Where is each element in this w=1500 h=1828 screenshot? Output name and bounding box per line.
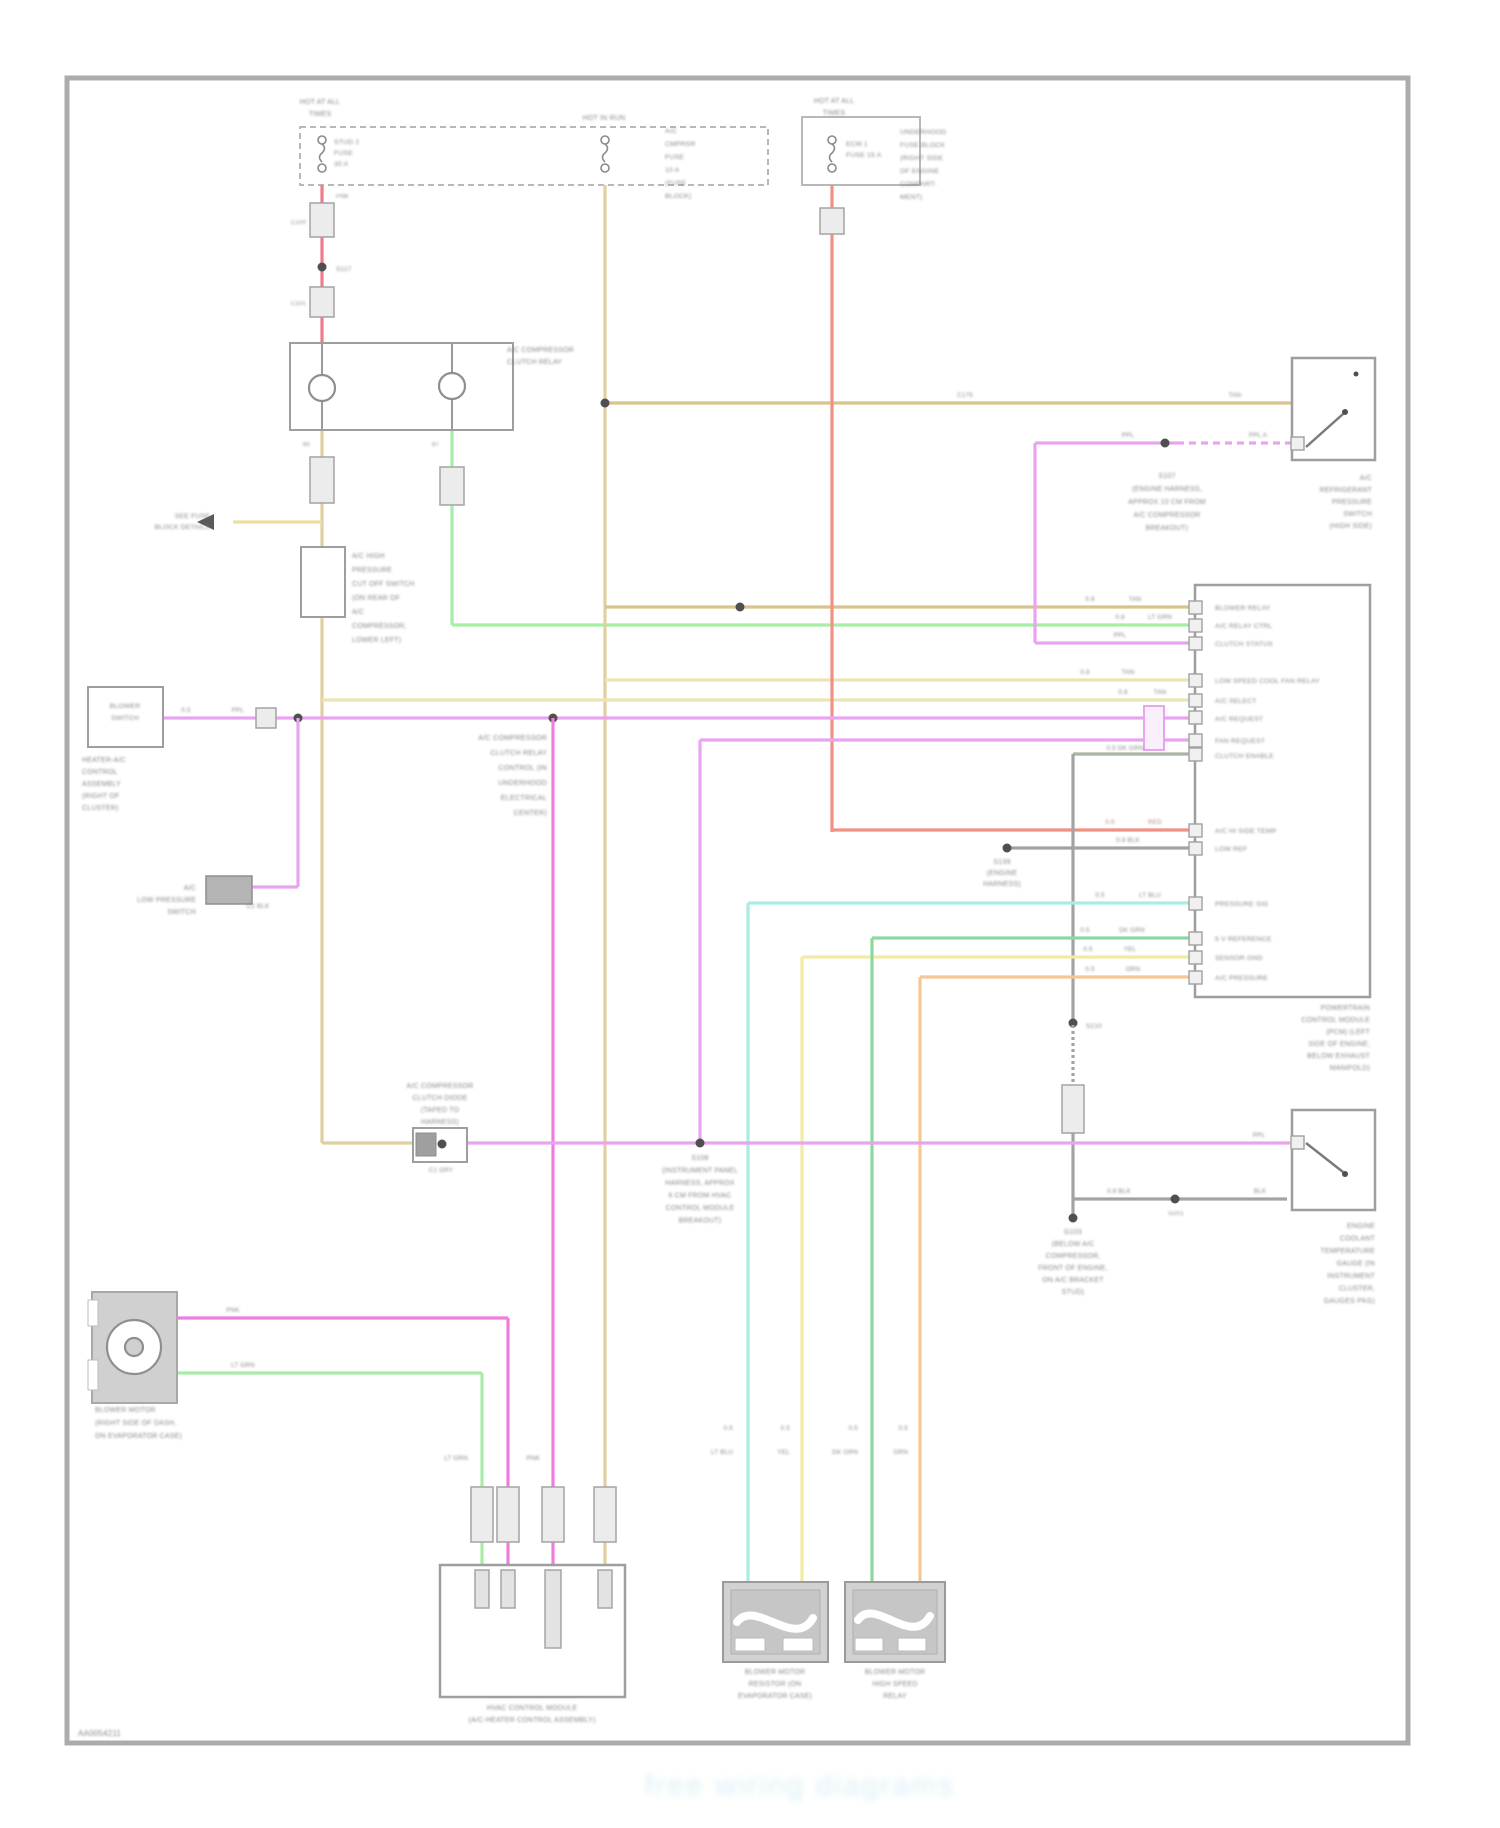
- code-blu-903a: 0.5: [1095, 892, 1105, 899]
- hot-label-3: HOT AT ALL: [814, 98, 855, 105]
- watermark: free wiring diagrams: [645, 1769, 955, 1802]
- fuse-2-label: FUSE: [665, 154, 684, 161]
- hs-relay-label: RELAY: [883, 1693, 907, 1700]
- pcm-pin-row: A/C SELECT: [1215, 698, 1257, 705]
- resistor-label: BLOWER MOTOR: [745, 1669, 806, 1676]
- lp-switch-label: A/C: [184, 885, 196, 892]
- splice-s107-label: (ENGINE HARNESS,: [1132, 486, 1202, 493]
- ground-g103-label: G103: [1064, 1229, 1082, 1236]
- splice-s108-label: HARNESS, APPROX: [665, 1180, 735, 1187]
- splice-s210-label: S210: [1086, 1023, 1102, 1030]
- lp-switch-label: SWITCH: [167, 909, 196, 916]
- pcm-pin-row: CLUTCH ENABLE: [1215, 753, 1274, 760]
- temp-gauge-label: COOLANT: [1340, 1236, 1376, 1243]
- code-pnk-1318: PNK: [226, 1307, 240, 1314]
- clutch-diode-label: CLUTCH DIODE: [413, 1095, 468, 1102]
- code-tan-700b: TAN: [1154, 689, 1167, 696]
- relay-label: A/C COMPRESSOR: [507, 347, 574, 354]
- pcm-label: CONTROL MODULE: [1301, 1017, 1370, 1024]
- pcm-pin-row: FAN REQUEST: [1215, 738, 1265, 745]
- hs-relay-slot-1: [855, 1638, 883, 1651]
- ground-g103-label: ON A/C BRACKET: [1042, 1277, 1104, 1284]
- clutch-control-label: CLUTCH RELAY: [490, 748, 547, 757]
- code-blu-903b: LT BLU: [1139, 892, 1161, 899]
- resistor-slot-2: [783, 1638, 813, 1651]
- fuse-2-label: (FUSE: [665, 180, 687, 187]
- connector-pin: [1189, 694, 1202, 707]
- hp-switch-label: REFRIGERANT: [1320, 487, 1373, 494]
- fuse-3-label: ECM 1: [846, 141, 868, 148]
- splice-s108-label: S108: [691, 1155, 708, 1162]
- pcm-pin-row: SENSOR GND: [1215, 955, 1263, 962]
- fuse-1-label: FUSE: [334, 150, 353, 157]
- pcm-pin-row: LOW REF: [1215, 846, 1247, 853]
- splice-s108-label: (INSTRUMENT PANEL: [662, 1168, 738, 1175]
- temp-gauge-box: [1292, 1110, 1375, 1210]
- code-grn3-v: LT GRN: [444, 1455, 468, 1462]
- code-grn-938a: 0.5: [1080, 927, 1090, 934]
- code-grn-938b: DK GRN: [1119, 927, 1145, 934]
- connector-pin: [1189, 674, 1202, 687]
- connector-on-red: [820, 208, 844, 234]
- blower-switch-label: CLUSTER): [82, 805, 119, 812]
- hp-cutoff-switch-label: LOWER LEFT): [352, 637, 401, 644]
- temp-gauge-label: GAUGES PKG): [1324, 1298, 1375, 1305]
- code-orn-977a: 0.5: [1085, 966, 1095, 973]
- hot-label-3: TIMES: [823, 110, 846, 117]
- clutch-diode-body: [416, 1133, 436, 1156]
- ppl-pair-connector: [1144, 706, 1164, 750]
- pcm-pin-row: A/C HI SIDE TEMP: [1215, 828, 1277, 835]
- blower-pin-notch-1: [88, 1300, 98, 1326]
- fuse-2-icon: [601, 164, 609, 172]
- splice-s139-label: HARNESS): [983, 881, 1021, 888]
- hp-switch-label: A/C: [1360, 475, 1372, 482]
- blower-motor-label: (RIGHT SIDE OF DASH,: [95, 1420, 176, 1427]
- code-yel-v: 0.5: [781, 1425, 791, 1432]
- fuse-block-b-label: COMPART-: [900, 181, 937, 188]
- tan-tee-dot-2: [736, 603, 745, 612]
- gry-gauge-dot: [1171, 1195, 1180, 1204]
- tan-tee-dot-1: [601, 399, 610, 408]
- connector-pin: [1189, 897, 1202, 910]
- hs-relay-slot-2: [898, 1638, 926, 1651]
- hs-relay-label: BLOWER MOTOR: [865, 1669, 926, 1676]
- code-c101: C101: [291, 301, 307, 307]
- lp-switch-conn-label: C2 BLK: [247, 903, 271, 910]
- pcm-pin-row: A/C PRESSURE: [1215, 975, 1268, 982]
- lp-switch-connector: [206, 876, 252, 904]
- connector-c100-gry: [1062, 1085, 1084, 1133]
- wiring-diagram-canvas: HOT AT ALLTIMESHOT IN RUNHOT AT ALLTIMES…: [0, 0, 1500, 1828]
- fuse-1-icon: [318, 164, 326, 172]
- fuse-block-b-label: FUSE BLOCK: [900, 142, 945, 149]
- fuse-2-label: 10 A: [665, 167, 680, 174]
- connector-pin: [1291, 1136, 1304, 1149]
- connector-on-pnk-blower: [497, 1487, 519, 1542]
- fuse-1-icon: [318, 136, 326, 144]
- clutch-control-label: CONTROL (IN: [498, 763, 547, 772]
- splice-s108-dot: [696, 1139, 705, 1148]
- code-ppl-a: PPL A: [1249, 432, 1268, 439]
- hot-label-1: TIMES: [309, 111, 332, 118]
- blower-switch-inner-label: SWITCH: [111, 715, 139, 722]
- fuse-1-label: 30 A: [334, 161, 349, 168]
- blower-motor-label: ON EVAPORATOR CASE): [95, 1433, 182, 1440]
- blower-switch-label: HEATER-A/C: [82, 757, 126, 764]
- pcm-pin-row: 5 V REFERENCE: [1215, 936, 1272, 943]
- connector-pin: [1189, 637, 1202, 650]
- hp-cutoff-switch-label: A/C HIGH: [352, 553, 385, 560]
- connector-pin: [1189, 601, 1202, 614]
- fuse-2-icon: [603, 144, 608, 162]
- clutch-control-label: UNDERHOOD: [498, 778, 547, 787]
- code-ppl-718b: PPL: [232, 707, 245, 714]
- connector-pin: [1189, 932, 1202, 945]
- connector-pin: [1189, 619, 1202, 632]
- hvac-control-label: (A/C-HEATER CONTROL ASSEMBLY): [468, 1717, 595, 1724]
- fuse-2-label: BLOCK): [665, 193, 692, 200]
- connector-pin: [1189, 842, 1202, 855]
- code-ppl-718a: 0.5: [181, 707, 191, 714]
- connector-pin: [1189, 748, 1202, 761]
- splice-s108-label: CONTROL MODULE: [666, 1205, 735, 1212]
- hp-switch-label: PRESSURE: [1332, 499, 1372, 506]
- code-red-830b: RED: [1148, 819, 1162, 826]
- code-tan-700a: 0.8: [1118, 689, 1128, 696]
- relay-coil-icon: [309, 375, 335, 401]
- lp-switch-label: LOW PRESSURE: [137, 897, 196, 904]
- fuse-3-label: FUSE 15 A: [846, 152, 882, 159]
- splice-s139-label: (ENGINE: [987, 870, 1018, 877]
- fuse-block-b-label: UNDERHOOD: [900, 129, 946, 136]
- hp-cutoff-switch-box: [301, 547, 345, 617]
- hp-switch-contact-2: [1354, 372, 1359, 377]
- hp-cutoff-switch-label: CUT OFF SWITCH: [352, 581, 415, 588]
- relay-label: CLUTCH RELAY: [507, 359, 562, 366]
- ground-g103-label: (BELOW A/C: [1052, 1241, 1095, 1248]
- code-yel-957a: 0.5: [1083, 946, 1093, 953]
- hp-cutoff-switch-label: COMPRESSOR,: [352, 623, 407, 630]
- code-tan-680a: 0.8: [1080, 669, 1090, 676]
- diagram-id: AA0054211: [78, 1729, 121, 1738]
- wiring-diagram-page: HOT AT ALLTIMESHOT IN RUNHOT AT ALLTIMES…: [0, 0, 1500, 1828]
- code-blk-1199b: BLK: [1254, 1188, 1267, 1195]
- underhood-fuse-block-box: [300, 127, 768, 185]
- code-yel-v2: YEL: [777, 1449, 790, 1456]
- temp-gauge-label: GAUGE (IN: [1337, 1261, 1375, 1268]
- connector-pin: [1291, 437, 1304, 450]
- hp-switch-contact: [1342, 409, 1348, 415]
- code-blk-1199a: 0.8 BLK: [1107, 1188, 1131, 1195]
- relay-pin-85: 85: [303, 442, 311, 448]
- connector-on-ltgrn: [440, 467, 464, 505]
- connector-pin: [1189, 971, 1202, 984]
- pcm-pin-row: PRESSURE SIG: [1215, 901, 1268, 908]
- fuse-block-b-label: (RIGHT SIDE: [900, 155, 944, 162]
- code-grn-v: 0.5: [849, 1425, 859, 1432]
- fuse-1-label: STUD 2: [334, 139, 359, 146]
- connector-c101: [310, 287, 334, 317]
- connector-on-ltgrn-blower: [471, 1487, 493, 1542]
- connector-c100: [310, 203, 334, 237]
- code-grn-v2: DK GRN: [832, 1449, 858, 1456]
- connector-on-tan2: [594, 1487, 616, 1542]
- hp-switch-label: (HIGH SIDE): [1329, 523, 1372, 530]
- code-grn-625a: 0.8: [1115, 614, 1125, 621]
- connector-pin: [1189, 734, 1202, 747]
- connector-on-ppl-long: [542, 1487, 564, 1542]
- hvac-pin-4: [598, 1570, 612, 1608]
- code-tan-680b: TAN: [1122, 669, 1135, 676]
- hp-cutoff-switch-label: A/C: [352, 609, 364, 616]
- code-tan-607b: TAN: [1129, 596, 1142, 603]
- connector-pin: [1189, 951, 1202, 964]
- connector-pin: [1189, 711, 1202, 724]
- pcm-pin-row: BLOWER RELAY: [1215, 605, 1271, 612]
- hot-label-1: HOT AT ALL: [300, 99, 341, 106]
- resistor-slot-1: [735, 1638, 765, 1651]
- code-blu-v: 0.5: [724, 1425, 734, 1432]
- connector-pin: [1189, 824, 1202, 837]
- relay-contact-icon: [439, 373, 465, 399]
- ppl-inline-connector: [256, 708, 276, 728]
- pcm-label: SIDE OF ENGINE,: [1308, 1041, 1370, 1048]
- hs-relay-label: HIGH SPEED: [872, 1681, 917, 1688]
- splice-s107-dot: [1161, 439, 1170, 448]
- fuse-3-icon: [828, 164, 836, 172]
- hvac-control-label: HVAC CONTROL MODULE: [487, 1705, 578, 1712]
- splice-s117-dot: [318, 263, 327, 272]
- splice-s107-label: A/C COMPRESSOR: [1134, 512, 1201, 519]
- fuse-2-label: A/C: [665, 128, 677, 135]
- pcm-label: BELOW EXHAUST: [1307, 1053, 1370, 1060]
- ground-g103-dot: [1069, 1214, 1078, 1223]
- blower-pin-notch-2: [88, 1360, 98, 1390]
- clutch-diode-dot: [438, 1140, 447, 1149]
- pcm-pin-row: A/C REQUEST: [1215, 716, 1263, 723]
- resistor-label: RESISTOR (ON: [749, 1681, 802, 1688]
- code-orn-v: 0.5: [899, 1425, 909, 1432]
- code-pnk2-v: PNK: [526, 1455, 540, 1462]
- splice-s139-label: S139: [993, 859, 1010, 866]
- ground-g103-label: STUD): [1062, 1289, 1084, 1296]
- clutch-control-label: ELECTRICAL: [501, 793, 547, 802]
- clutch-control-label: CENTER): [514, 808, 547, 817]
- ground-g103-label: FRONT OF ENGINE,: [1038, 1265, 1108, 1272]
- fuse-1-icon: [320, 144, 325, 162]
- reference-label: SEE FUSE: [175, 513, 210, 520]
- pcm-pin-row: A/C RELAY CTRL: [1215, 623, 1272, 630]
- code-orn-977b: ORN: [1126, 966, 1141, 973]
- clutch-diode-label: A/C COMPRESSOR: [407, 1083, 474, 1090]
- code-dkgrn-754: 0.5 DK GRN: [1107, 745, 1144, 752]
- fuse-3-icon: [828, 136, 836, 144]
- fuse-3-icon: [830, 144, 835, 162]
- code-blu-v2: LT BLU: [711, 1449, 733, 1456]
- blower-switch-label: ASSEMBLY: [82, 781, 121, 788]
- fuse-block-b-label: MENT): [900, 194, 923, 201]
- code-c100: C100: [291, 220, 307, 226]
- splice-s107-label: S107: [1158, 473, 1175, 480]
- code-ppl-top: PPL: [1122, 432, 1135, 439]
- pcm-label: POWERTRAIN: [1321, 1005, 1370, 1012]
- pcm-label: MANIFOLD): [1330, 1065, 1370, 1072]
- temp-gauge-label: ENGINE: [1347, 1223, 1375, 1230]
- code-blk-848: 0.8 BLK: [1116, 837, 1140, 844]
- temp-gauge-label: CLUSTER,: [1339, 1286, 1375, 1293]
- pcm-pin-row: LOW SPEED COOL FAN RELAY: [1215, 678, 1320, 685]
- clutch-diode-label: HARNESS): [421, 1119, 459, 1126]
- clutch-diode-label: (TAPED TO: [421, 1107, 460, 1114]
- splice-s139-dot: [1003, 844, 1012, 853]
- splice-s108-label: BREAKOUT): [679, 1218, 722, 1225]
- pcm-label: (PCM) (LEFT: [1326, 1029, 1370, 1036]
- code-grn-625b: LT GRN: [1148, 614, 1172, 621]
- code-orn-v2: ORN: [893, 1449, 908, 1456]
- blower-fan-hub: [125, 1338, 143, 1356]
- connector-on-tan: [310, 457, 334, 503]
- code-ppl-gauge: PPL: [1253, 1132, 1266, 1139]
- code-grn-1373: LT GRN: [231, 1362, 255, 1369]
- hvac-pin-2: [501, 1570, 515, 1608]
- ground-g103-label: COMPRESSOR,: [1046, 1253, 1101, 1260]
- blower-switch-inner-label: BLOWER: [110, 703, 141, 710]
- code-c175: C175: [957, 392, 973, 399]
- splice-s107-label: APPROX 10 CM FROM: [1128, 499, 1206, 506]
- temp-gauge-label: INSTRUMENT: [1327, 1273, 1375, 1280]
- code-red-830a: 0.5: [1105, 819, 1115, 826]
- hot-label-2: HOT IN RUN: [583, 115, 626, 122]
- splice-s117-label: S117: [336, 266, 352, 273]
- blower-switch-label: (RIGHT OF: [82, 793, 119, 800]
- hp-cutoff-switch-label: (ON REAR OF: [352, 595, 400, 602]
- fuse-block-b-label: OF ENGINE: [900, 168, 939, 175]
- code-dot-1175: G201: [1168, 1211, 1184, 1217]
- hvac-pin-1: [475, 1570, 489, 1608]
- code-ppl-643: PPL: [1114, 632, 1127, 639]
- resistor-label: EVAPORATOR CASE): [738, 1693, 812, 1700]
- pcm-pin-row: CLUTCH STATUS: [1215, 641, 1273, 648]
- relay-pin-87: 87: [432, 442, 440, 448]
- reference-label: BLOCK DETAILS: [155, 524, 211, 531]
- blower-switch-label: CONTROL: [82, 769, 118, 776]
- code-tan-607a: 0.8: [1085, 596, 1095, 603]
- fuse-2-label: CMPRSR: [665, 141, 696, 148]
- hvac-pin-3: [545, 1570, 561, 1648]
- clutch-control-label: A/C COMPRESSOR: [478, 733, 547, 742]
- splice-s108-label: 6 CM FROM HVAC: [669, 1193, 732, 1200]
- clutch-diode-conn-label: C1 GRY: [429, 1167, 454, 1174]
- blower-motor-label: BLOWER MOTOR: [95, 1407, 156, 1414]
- splice-s107-label: BREAKOUT): [1146, 525, 1189, 532]
- code-tan-1: TAN: [1229, 392, 1242, 399]
- fuse-2-icon: [601, 136, 609, 144]
- hp-cutoff-switch-label: PRESSURE: [352, 567, 392, 574]
- temp-gauge-contact: [1342, 1171, 1348, 1177]
- hp-switch-label: SWITCH: [1343, 511, 1372, 518]
- temp-gauge-label: TEMPERATURE: [1320, 1248, 1375, 1255]
- code-yel-957b: YEL: [1124, 946, 1137, 953]
- code-pnk: PNK: [336, 194, 349, 200]
